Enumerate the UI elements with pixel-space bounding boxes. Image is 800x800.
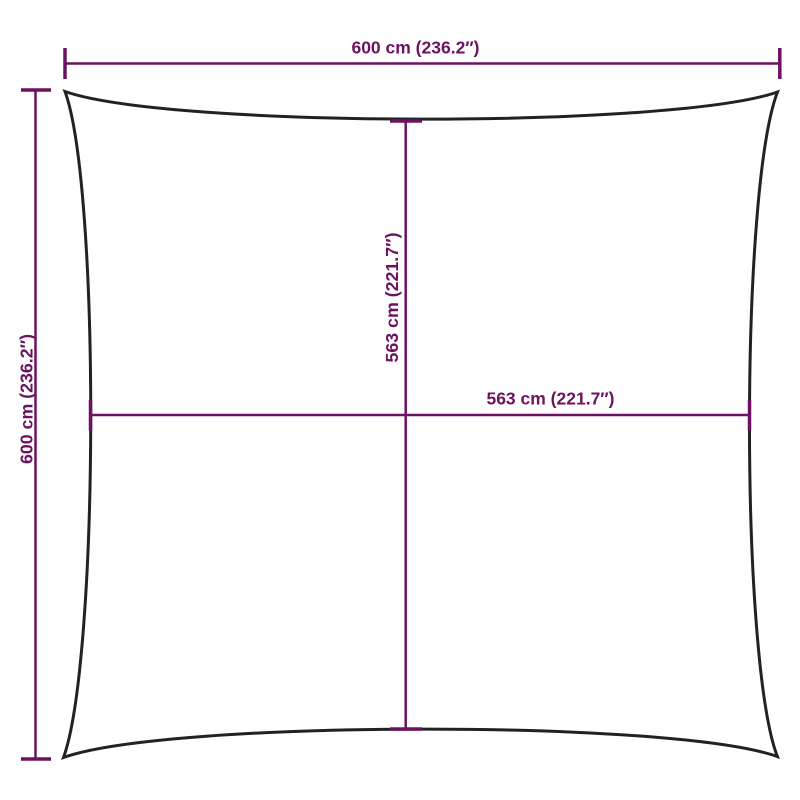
svg-text:600 cm (236.2″): 600 cm (236.2″) (351, 38, 479, 58)
svg-text:563 cm (221.7″): 563 cm (221.7″) (486, 388, 614, 408)
svg-text:563 cm (221.7″): 563 cm (221.7″) (382, 232, 402, 362)
svg-text:600 cm (236.2″): 600 cm (236.2″) (17, 334, 37, 464)
